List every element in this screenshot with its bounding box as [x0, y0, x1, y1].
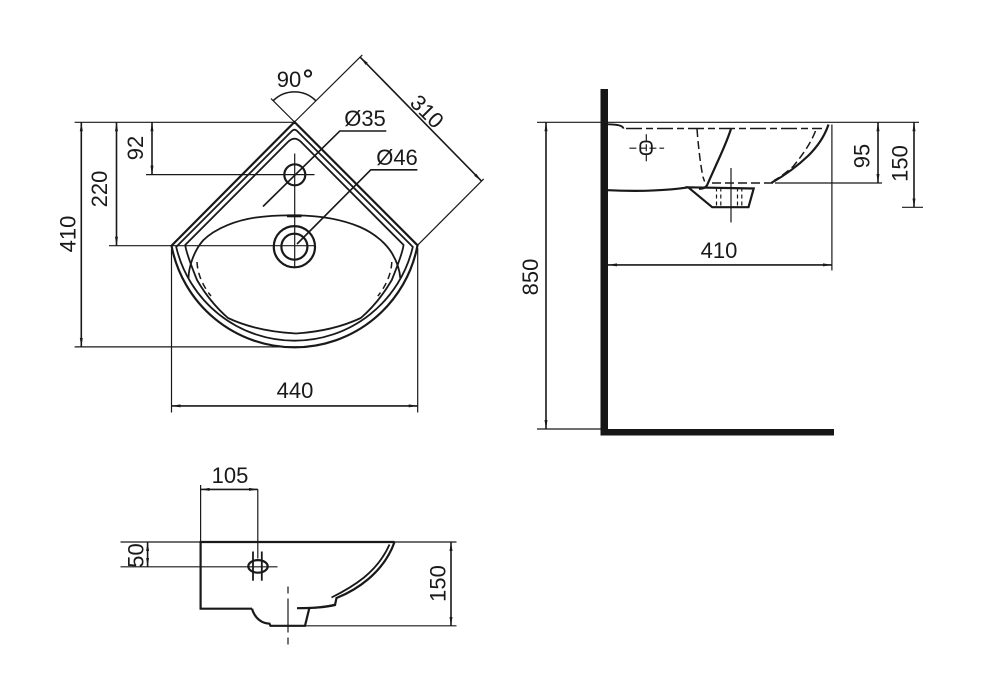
svg-text:Ø46: Ø46	[376, 145, 418, 170]
svg-text:220: 220	[87, 171, 112, 208]
svg-text:410: 410	[56, 216, 81, 253]
svg-text:850: 850	[518, 259, 543, 296]
svg-text:410: 410	[701, 238, 738, 263]
svg-text:105: 105	[212, 463, 249, 488]
svg-text:95: 95	[849, 144, 874, 168]
svg-text:150: 150	[888, 145, 913, 182]
svg-text:310: 310	[405, 90, 449, 134]
svg-text:92: 92	[123, 136, 148, 160]
svg-text:90: 90	[277, 67, 301, 92]
svg-text:440: 440	[277, 378, 314, 403]
svg-text:50: 50	[123, 543, 148, 567]
svg-text:150: 150	[426, 565, 451, 602]
svg-text:Ø35: Ø35	[344, 106, 386, 131]
